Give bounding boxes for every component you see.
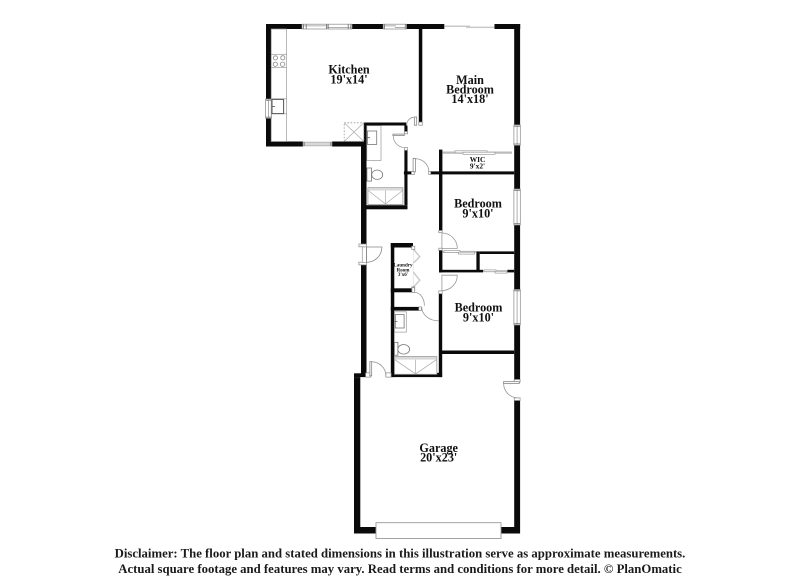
svg-text:19'x14': 19'x14': [330, 73, 367, 87]
svg-text:Actual square footage and feat: Actual square footage and features may v…: [118, 562, 682, 576]
svg-text:Disclaimer: The floor plan and: Disclaimer: The floor plan and stated di…: [115, 547, 686, 561]
svg-text:9'x2': 9'x2': [470, 162, 485, 171]
svg-text:3'x6': 3'x6': [398, 273, 409, 278]
svg-text:9'x10': 9'x10': [462, 207, 493, 221]
svg-text:9'x10': 9'x10': [463, 311, 494, 325]
svg-text:20'x23': 20'x23': [420, 451, 457, 465]
svg-text:14'x18': 14'x18': [451, 92, 488, 106]
